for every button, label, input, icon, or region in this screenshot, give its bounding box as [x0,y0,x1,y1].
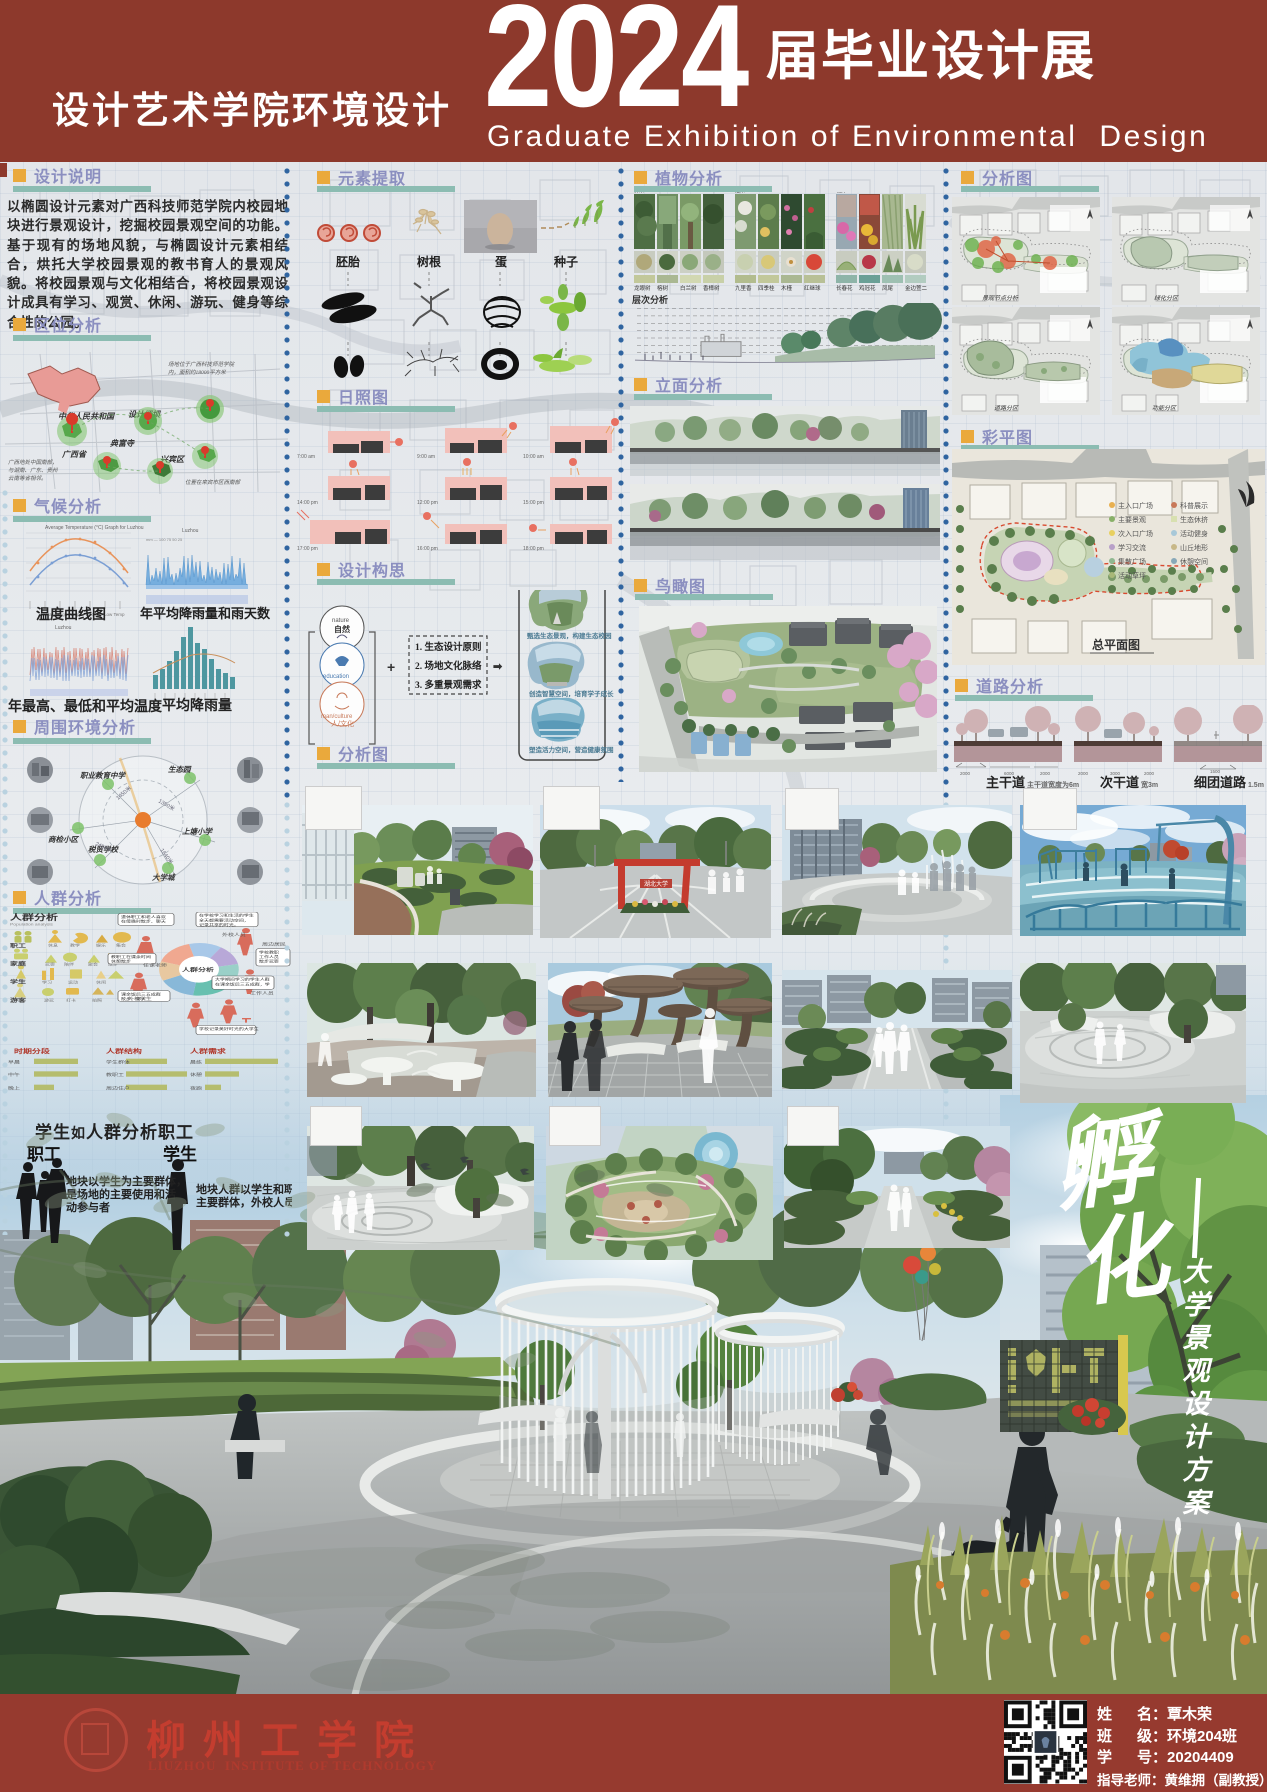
svg-text:科普展示: 科普展示 [1180,501,1208,510]
svg-text:白兰树: 白兰树 [680,284,697,292]
svg-text:年平均降雨量和雨天数: 年平均降雨量和雨天数 [140,606,271,621]
svg-text:龙眼树: 龙眼树 [634,284,651,292]
svg-text:Average Temperature (°C) Graph: Average Temperature (°C) Graph for Luzho… [45,525,144,531]
svg-text:榕树: 榕树 [657,284,669,292]
svg-text:胚胎: 胚胎 [336,254,360,269]
svg-text:九里香: 九里香 [735,284,752,292]
svg-text:功能分区: 功能分区 [1152,404,1177,412]
svg-text:自然: 自然 [334,624,350,634]
svg-text:与湖南、广东、贵州: 与湖南、广东、贵州 [8,467,59,474]
svg-text:15:00 pm: 15:00 pm [523,500,544,506]
svg-text:nature: nature [332,618,350,624]
svg-text:14:00 pm: 14:00 pm [297,500,318,506]
svg-text:温度曲线图: 温度曲线图 [36,606,106,623]
svg-text:云南等省相邻。: 云南等省相邻。 [8,475,47,482]
svg-text:景观节点分析: 景观节点分析 [982,294,1019,302]
svg-text:17:00 pm: 17:00 pm [297,546,318,552]
svg-text:2000: 2000 [960,771,971,776]
svg-text:道路分区: 道路分区 [994,404,1019,412]
svg-text:年最高、最低和平均温度: 年最高、最低和平均温度 [8,698,163,715]
svg-text:16:00 pm: 16:00 pm [417,546,438,552]
svg-text:12:00 pm: 12:00 pm [417,500,438,506]
svg-text:7:00 am: 7:00 am [297,454,315,460]
svg-text:平均降雨量: 平均降雨量 [162,697,232,714]
svg-text:蛋: 蛋 [495,255,507,269]
svg-text:甄选生态景观，构建生态校园: 甄选生态景观，构建生态校园 [527,631,612,640]
svg-text:education: education [323,674,349,680]
svg-text:湖北大学: 湖北大学 [644,880,668,888]
svg-text:广西地处中国南部，: 广西地处中国南部， [8,459,58,466]
svg-text:集散广场: 集散广场 [1118,557,1146,566]
svg-text:休憩空间: 休憩空间 [1180,557,1208,566]
svg-text:创造智慧空间，培育学子成长: 创造智慧空间，培育学子成长 [528,689,614,698]
svg-text:3. 多重景观需求: 3. 多重景观需求 [415,679,482,691]
svg-text:10:00 am: 10:00 am [523,454,544,460]
svg-text:内，面积约18000平方米: 内，面积约18000平方米 [168,369,226,376]
svg-text:学习交流: 学习交流 [1118,543,1146,552]
svg-text:活动健身: 活动健身 [1180,529,1208,538]
svg-text:金边萱二: 金边萱二 [905,284,928,292]
svg-text:man/culture: man/culture [321,714,353,720]
svg-text:Luzhou: Luzhou [55,625,72,631]
svg-text:种子: 种子 [553,254,578,269]
svg-text:山丘地形: 山丘地形 [1180,543,1208,552]
svg-text:1. 生态设计原则: 1. 生态设计原则 [415,641,482,653]
svg-text:广西省: 广西省 [61,450,87,459]
svg-text:职业教育中学: 职业教育中学 [80,771,126,780]
svg-text:香樟树: 香樟树 [703,284,720,292]
svg-text:➡: ➡ [493,661,503,673]
svg-text:鸡冠花: 鸡冠花 [859,284,876,292]
svg-text:Luzhou: Luzhou [182,528,199,534]
svg-text:总平面图: 总平面图 [1092,637,1140,652]
svg-text:+: + [387,659,395,675]
svg-text:木槿: 木槿 [781,284,793,292]
svg-text:生态休挤: 生态休挤 [1180,515,1208,524]
svg-text:mm — 100 75 50 25: mm — 100 75 50 25 [146,537,183,542]
svg-text:活动草坪: 活动草坪 [1118,571,1146,580]
svg-text:凤尾: 凤尾 [882,285,894,292]
svg-text:典富寺: 典富寺 [110,439,135,448]
svg-text:绿化分区: 绿化分区 [1154,294,1179,302]
svg-text:场地位于广西科技师范学院: 场地位于广西科技师范学院 [168,361,236,368]
svg-text:9:00 am: 9:00 am [417,454,435,460]
svg-text:2. 场地文化脉络: 2. 场地文化脉络 [415,660,482,672]
svg-text:2000: 2000 [1078,771,1089,776]
svg-text:树根: 树根 [417,254,441,269]
svg-text:人/文化: 人/文化 [331,719,354,728]
svg-text:位置在来宾市区西南部: 位置在来宾市区西南部 [185,479,242,486]
svg-text:主入口广场: 主入口广场 [1118,501,1153,510]
svg-text:长春花: 长春花 [836,284,853,292]
svg-text:主要景观: 主要景观 [1118,515,1146,524]
svg-text:18:00 pm: 18:00 pm [523,546,544,552]
svg-text:红继球: 红继球 [804,284,821,292]
svg-text:塑造活力空间，营造健康氛围: 塑造活力空间，营造健康氛围 [529,745,614,754]
svg-text:四季桂: 四季桂 [758,284,775,292]
svg-text:次入口广场: 次入口广场 [1118,529,1153,538]
svg-text:生态园: 生态园 [168,765,192,774]
